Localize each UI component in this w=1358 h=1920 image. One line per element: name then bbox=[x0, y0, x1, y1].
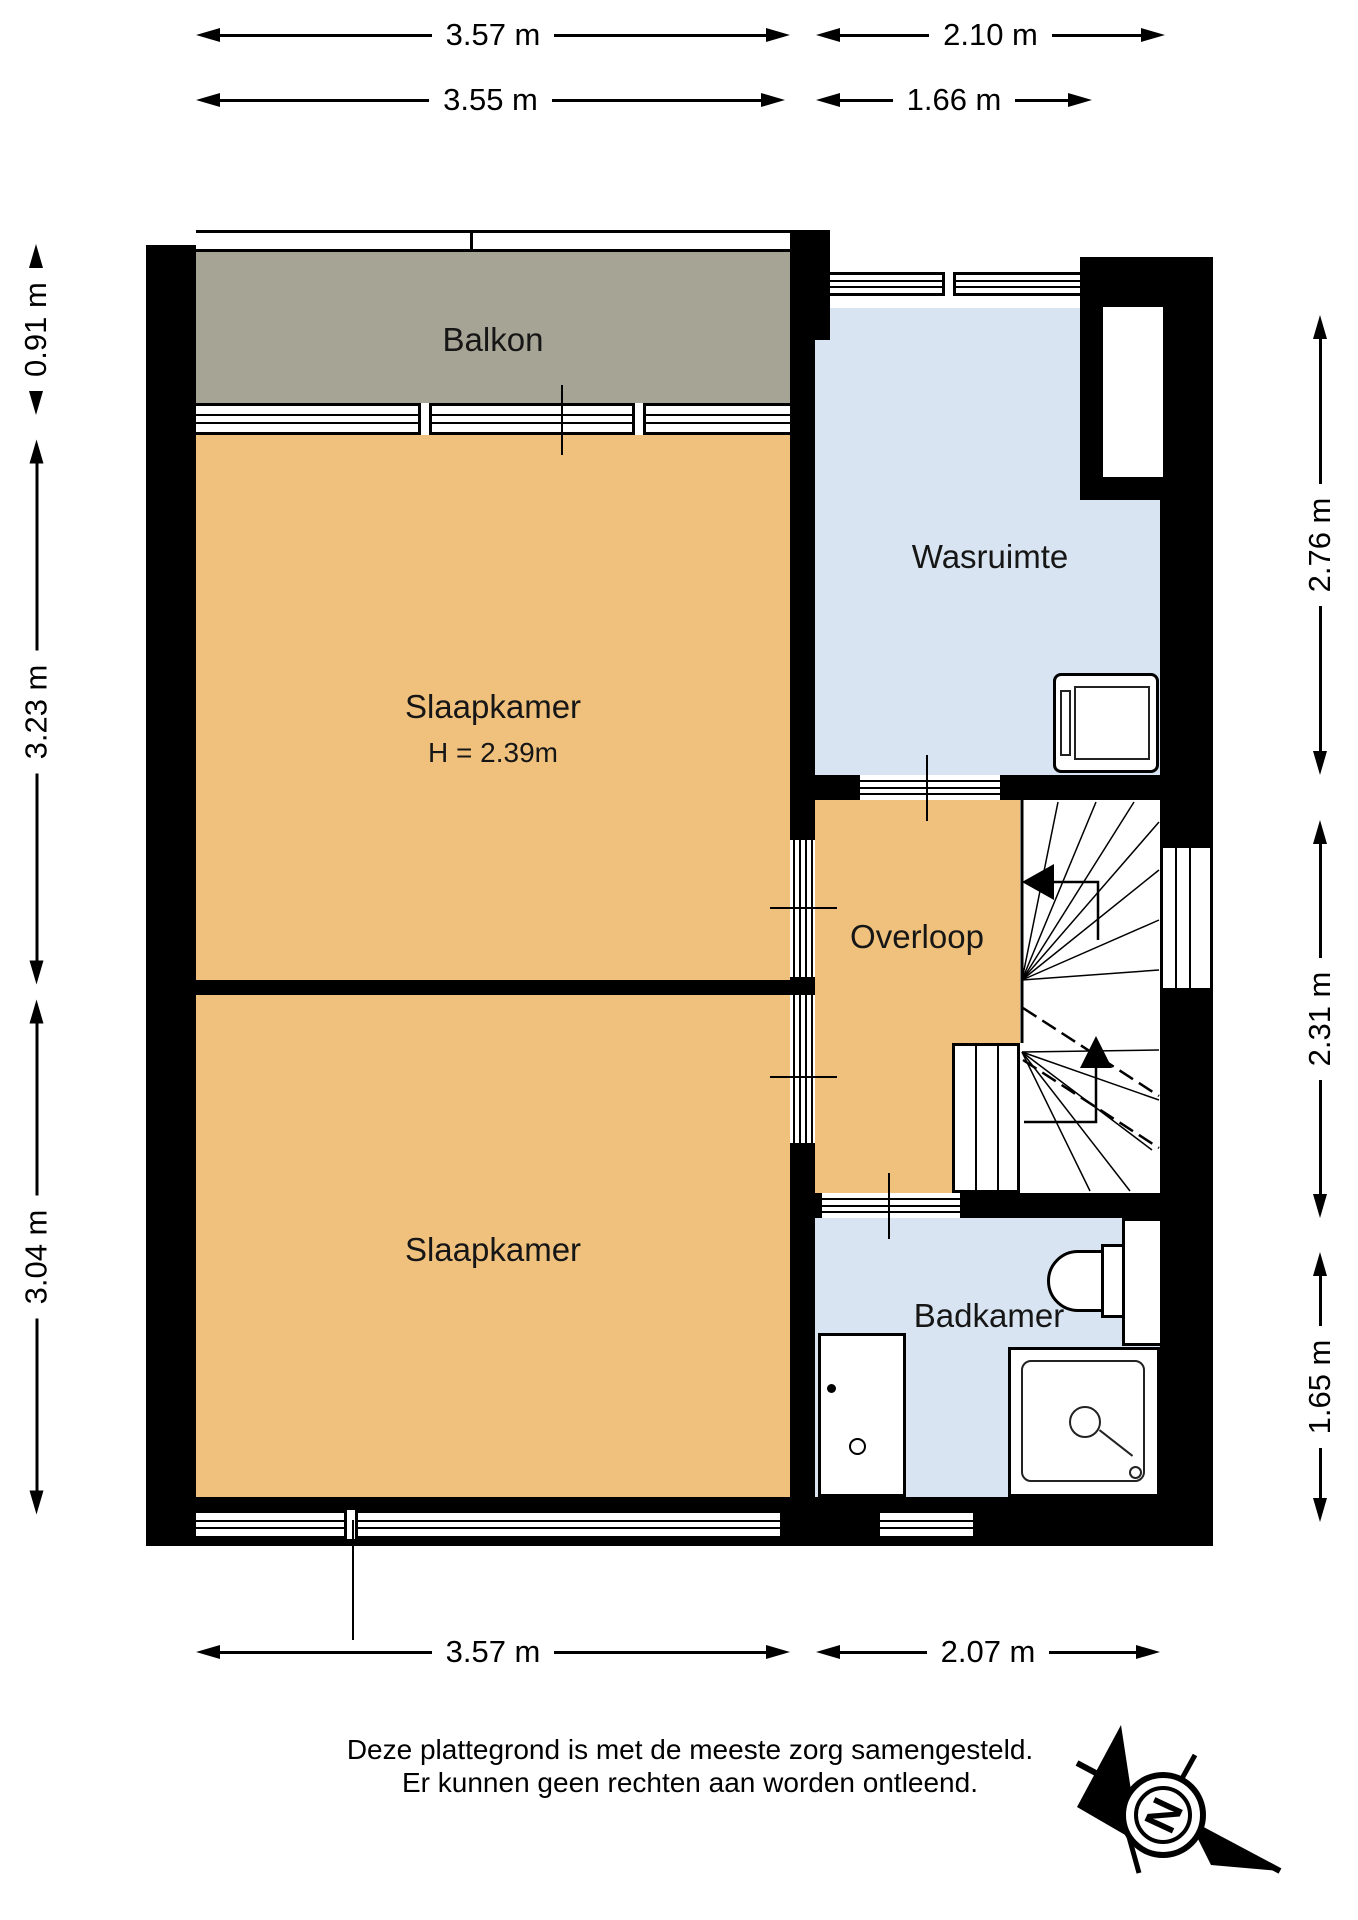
shower-tray bbox=[1008, 1347, 1160, 1497]
window-wasruimte-top bbox=[830, 272, 1080, 296]
arrow-left-icon bbox=[1313, 1498, 1327, 1522]
arrow-left-icon bbox=[196, 1645, 220, 1659]
label-wasruimte: Wasruimte bbox=[912, 538, 1068, 576]
label-badkamer: Badkamer bbox=[914, 1297, 1064, 1335]
arrow-right-icon bbox=[766, 28, 790, 42]
wall-overloop-bottom-left bbox=[790, 1193, 822, 1218]
balkon-door-tick bbox=[561, 385, 563, 455]
arrow-right-icon bbox=[1068, 93, 1092, 107]
arrow-left-icon bbox=[29, 391, 43, 415]
dim-right-wasruimte: 2.76 m bbox=[1309, 315, 1331, 775]
stairs-landing bbox=[952, 1043, 1020, 1193]
disclaimer: Deze plattegrond is met de meeste zorg s… bbox=[240, 1733, 1140, 1799]
opening-wasruimte-overloop bbox=[860, 775, 1000, 800]
label-balkon: Balkon bbox=[443, 321, 544, 359]
door-tick-wasruimte bbox=[926, 755, 928, 821]
dim-bottom-left: 3.57 m bbox=[196, 1641, 790, 1663]
balkon-railing bbox=[196, 230, 790, 252]
door-slaapkamer-2 bbox=[790, 995, 815, 1143]
label-slaapkamer-1: Slaapkamer bbox=[405, 688, 581, 726]
dim-label: 3.57 m bbox=[432, 17, 555, 53]
wall-top-chunk bbox=[790, 230, 830, 340]
dim-top-outer-right: 2.10 m bbox=[816, 24, 1165, 46]
dim-label: 3.57 m bbox=[432, 1634, 555, 1670]
arrow-right-icon bbox=[30, 440, 44, 464]
dim-label: 0.91 m bbox=[18, 268, 54, 391]
arrow-left-icon bbox=[816, 28, 840, 42]
dim-right-badkamer: 1.65 m bbox=[1309, 1252, 1331, 1522]
staircase bbox=[1020, 800, 1160, 1193]
arrow-right-icon bbox=[1313, 315, 1327, 339]
shower-head-icon bbox=[1069, 1406, 1101, 1438]
arrow-right-icon bbox=[1141, 28, 1165, 42]
niche-top-right bbox=[1103, 307, 1163, 477]
arrow-right-icon bbox=[1136, 1645, 1160, 1659]
dim-top-inner-left: 3.55 m bbox=[196, 89, 785, 111]
dim-label: 2.76 m bbox=[1302, 484, 1338, 607]
window-mullion bbox=[344, 1510, 358, 1539]
wall-between-bedrooms bbox=[196, 980, 815, 995]
washbasin-drain bbox=[849, 1438, 866, 1455]
disclaimer-line-1: Deze plattegrond is met de meeste zorg s… bbox=[240, 1733, 1140, 1766]
dim-label: 2.07 m bbox=[927, 1634, 1050, 1670]
wall-left-outer bbox=[146, 245, 196, 1546]
dim-left-slaapkamer-2: 3.04 m bbox=[26, 1000, 48, 1515]
dim-label: 1.65 m bbox=[1302, 1326, 1338, 1449]
window-mullion bbox=[418, 403, 432, 435]
arrow-right-icon bbox=[1313, 1252, 1327, 1276]
dim-label: 2.10 m bbox=[929, 17, 1052, 53]
label-overloop: Overloop bbox=[850, 918, 984, 956]
dim-label: 2.31 m bbox=[1302, 958, 1338, 1081]
dim-left-slaapkamer-1: 3.23 m bbox=[26, 440, 48, 985]
arrow-right-icon bbox=[761, 93, 785, 107]
door-tick-slaapkamer-2 bbox=[770, 1076, 837, 1078]
arrow-right-icon bbox=[30, 1000, 44, 1024]
arrow-left-icon bbox=[30, 961, 44, 985]
window-mullion bbox=[632, 403, 646, 435]
arrow-left-icon bbox=[30, 1491, 44, 1515]
dim-label: 3.55 m bbox=[429, 82, 552, 118]
dim-label: 3.04 m bbox=[19, 1196, 55, 1319]
dim-left-balkon: 0.91 m bbox=[25, 255, 47, 415]
stairs-up-arrow-icon bbox=[1080, 1036, 1112, 1068]
washbasin bbox=[818, 1333, 906, 1497]
shower-drain bbox=[1129, 1466, 1142, 1479]
washing-machine-drum bbox=[1074, 686, 1150, 760]
dim-label: 3.23 m bbox=[19, 651, 55, 774]
bottom-door-tick bbox=[352, 1520, 354, 1640]
arrow-left-icon bbox=[1313, 1194, 1327, 1218]
washing-machine bbox=[1053, 673, 1159, 773]
arrow-left-icon bbox=[1313, 751, 1327, 775]
badkamer-closet bbox=[1122, 1218, 1163, 1346]
arrow-right-icon bbox=[1313, 820, 1327, 844]
window-mullion bbox=[942, 272, 956, 296]
stairs-down-arrow-icon bbox=[1022, 864, 1054, 900]
window-balkon-slaapkamer bbox=[196, 403, 790, 435]
door-tick-badkamer bbox=[888, 1173, 890, 1239]
washing-machine-panel bbox=[1060, 690, 1071, 756]
label-slaapkamer-2: Slaapkamer bbox=[405, 1231, 581, 1269]
north-compass-icon: N bbox=[1075, 1713, 1285, 1878]
arrow-left-icon bbox=[196, 93, 220, 107]
dim-top-inner-right: 1.66 m bbox=[816, 89, 1092, 111]
window-badkamer-bottom bbox=[880, 1510, 973, 1539]
arrow-left-icon bbox=[816, 1645, 840, 1659]
arrow-left-icon bbox=[196, 28, 220, 42]
dim-top-outer-left: 3.57 m bbox=[196, 24, 790, 46]
door-tick-slaapkamer-1 bbox=[770, 907, 837, 909]
arrow-left-icon bbox=[816, 93, 840, 107]
railing-mullion bbox=[470, 233, 473, 249]
floorplan-canvas: 3.57 m 2.10 m 3.55 m 1.66 m 0.91 m 3.23 … bbox=[0, 0, 1358, 1920]
window-slaapkamer-2-bottom bbox=[196, 1510, 780, 1539]
label-height-note: H = 2.39m bbox=[428, 737, 558, 769]
wall-overloop-bottom-right bbox=[960, 1193, 1160, 1218]
dim-bottom-right: 2.07 m bbox=[816, 1641, 1160, 1663]
dim-label: 1.66 m bbox=[893, 82, 1016, 118]
disclaimer-line-2: Er kunnen geen rechten aan worden ontlee… bbox=[240, 1766, 1140, 1799]
dim-right-overloop: 2.31 m bbox=[1309, 820, 1331, 1218]
window-stairs-right bbox=[1160, 848, 1213, 988]
wall-wasruimte-bottom-right bbox=[1000, 775, 1160, 800]
arrow-right-icon bbox=[29, 244, 43, 268]
washbasin-knob bbox=[827, 1384, 836, 1393]
wall-wasruimte-bottom-left bbox=[790, 775, 860, 800]
arrow-right-icon bbox=[766, 1645, 790, 1659]
opening-overloop-badkamer bbox=[822, 1193, 960, 1218]
